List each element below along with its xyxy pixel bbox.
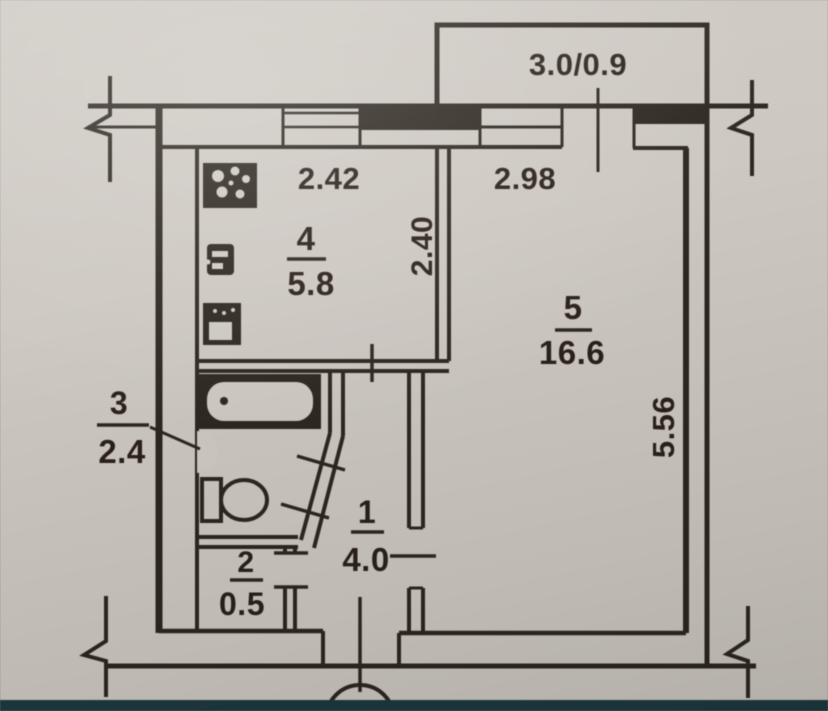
- oven-icon: [203, 303, 241, 345]
- floor-plan-drawing: 3.0/0.9: [0, 0, 828, 711]
- kitchen-sink-icon: [206, 244, 235, 275]
- toilet-room-number: 2: [237, 546, 254, 579]
- kitchen-depth-dimension: 2.40: [406, 216, 439, 276]
- living-room-area-label: 16.6: [539, 334, 605, 371]
- kitchen-width-dimension: 2.42: [298, 161, 360, 196]
- photo-edge-band: [0, 700, 828, 711]
- hallway-room-number: 1: [358, 494, 376, 530]
- wall-pier: [360, 106, 480, 130]
- living-room-number: 5: [564, 289, 583, 326]
- toilet-area-label: 0.5: [219, 586, 265, 622]
- kitchen-room-number: 4: [297, 220, 316, 257]
- bathtub-icon: [199, 374, 321, 429]
- hallway-area-label: 4.0: [342, 541, 389, 578]
- living-room-depth-dimension: 5.56: [646, 396, 681, 458]
- wall-pier: [633, 106, 707, 124]
- kitchen-area-label: 5.8: [287, 265, 334, 302]
- balcony-dimension-label: 3.0/0.9: [529, 47, 627, 82]
- stove-icon: [203, 163, 257, 208]
- bathroom-room-number: 3: [110, 385, 128, 421]
- bathroom-area-label: 2.4: [98, 433, 146, 470]
- floor-plan-photo: 3.0/0.9: [0, 0, 828, 711]
- living-room-width-dimension: 2.98: [494, 161, 556, 196]
